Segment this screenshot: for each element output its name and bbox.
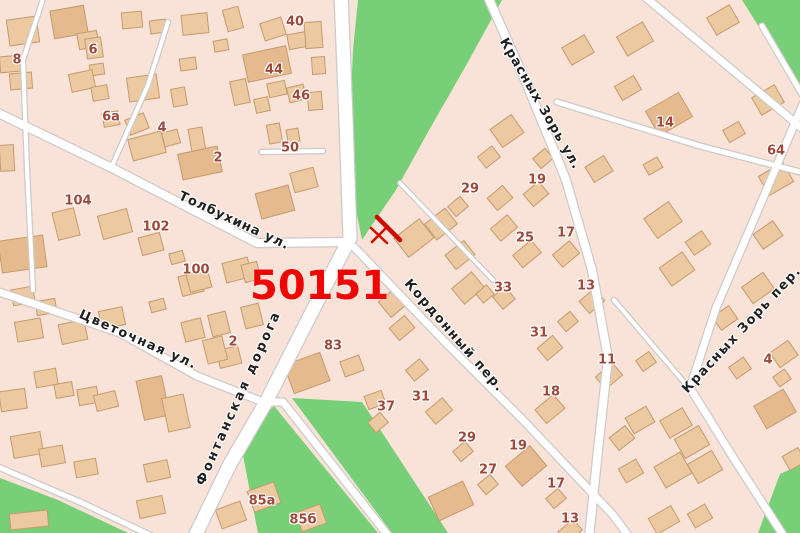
building bbox=[0, 145, 15, 172]
building bbox=[91, 85, 109, 102]
building bbox=[179, 57, 197, 71]
building bbox=[0, 235, 47, 273]
building bbox=[286, 128, 300, 143]
building bbox=[254, 97, 271, 114]
building bbox=[102, 111, 120, 128]
map[interactable]: Толбухина ул.Цветочная ул.Фонтанская дор… bbox=[0, 0, 800, 533]
building bbox=[9, 510, 48, 530]
building bbox=[213, 39, 229, 52]
building bbox=[181, 13, 209, 36]
building bbox=[74, 458, 98, 478]
building bbox=[181, 318, 205, 342]
building bbox=[39, 445, 66, 467]
building bbox=[54, 382, 74, 399]
plot-number-marker[interactable]: 50151 bbox=[250, 266, 389, 306]
building bbox=[266, 123, 282, 144]
building bbox=[85, 37, 104, 59]
building bbox=[121, 11, 142, 29]
building bbox=[14, 318, 43, 342]
building bbox=[311, 57, 325, 75]
building bbox=[171, 87, 188, 107]
building bbox=[307, 91, 323, 110]
building bbox=[0, 388, 27, 411]
building bbox=[267, 80, 288, 97]
building bbox=[304, 21, 323, 48]
building bbox=[0, 55, 21, 73]
building bbox=[10, 432, 43, 459]
road-lane-50 bbox=[262, 151, 323, 152]
map-canvas bbox=[0, 0, 800, 533]
